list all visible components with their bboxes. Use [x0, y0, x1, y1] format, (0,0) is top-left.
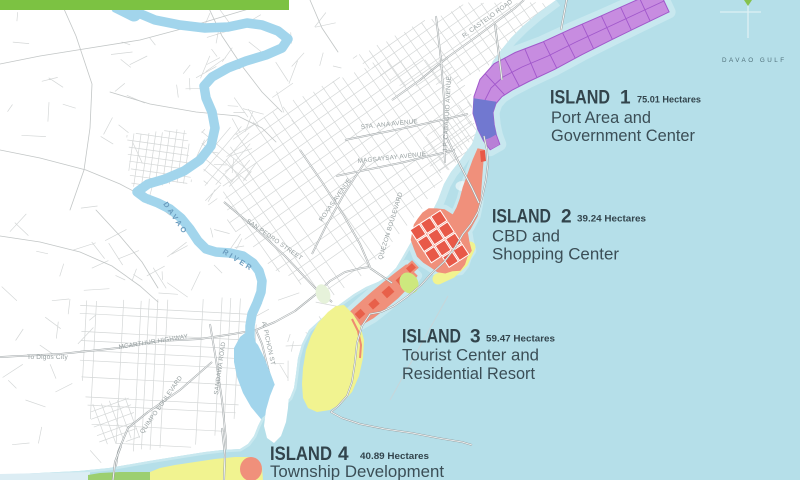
svg-text:Township Development: Township Development	[270, 462, 444, 480]
svg-text:DAVAO GULF: DAVAO GULF	[722, 57, 787, 64]
svg-text:75.01 Hectares: 75.01 Hectares	[637, 95, 701, 106]
svg-text:Residential Resort: Residential Resort	[402, 364, 535, 383]
svg-text:59.47 Hectares: 59.47 Hectares	[486, 334, 555, 345]
svg-text:Shopping Center: Shopping Center	[492, 245, 619, 264]
svg-text:2: 2	[561, 207, 572, 228]
svg-text:39.24 Hectares: 39.24 Hectares	[577, 214, 646, 225]
svg-text:Port Area and: Port Area and	[551, 108, 651, 127]
svg-text:ISLAND: ISLAND	[402, 327, 461, 348]
svg-text:Government Center: Government Center	[551, 126, 695, 145]
svg-text:To Digos City: To Digos City	[27, 354, 68, 361]
svg-text:ISLAND: ISLAND	[492, 207, 551, 228]
svg-text:3: 3	[470, 327, 481, 348]
svg-text:ISLAND: ISLAND	[550, 88, 610, 109]
svg-text:40.89 Hectares: 40.89 Hectares	[360, 451, 429, 462]
svg-text:Tourist Center and: Tourist Center and	[402, 346, 539, 365]
svg-text:CBD and: CBD and	[492, 227, 560, 246]
svg-text:1: 1	[620, 88, 631, 109]
